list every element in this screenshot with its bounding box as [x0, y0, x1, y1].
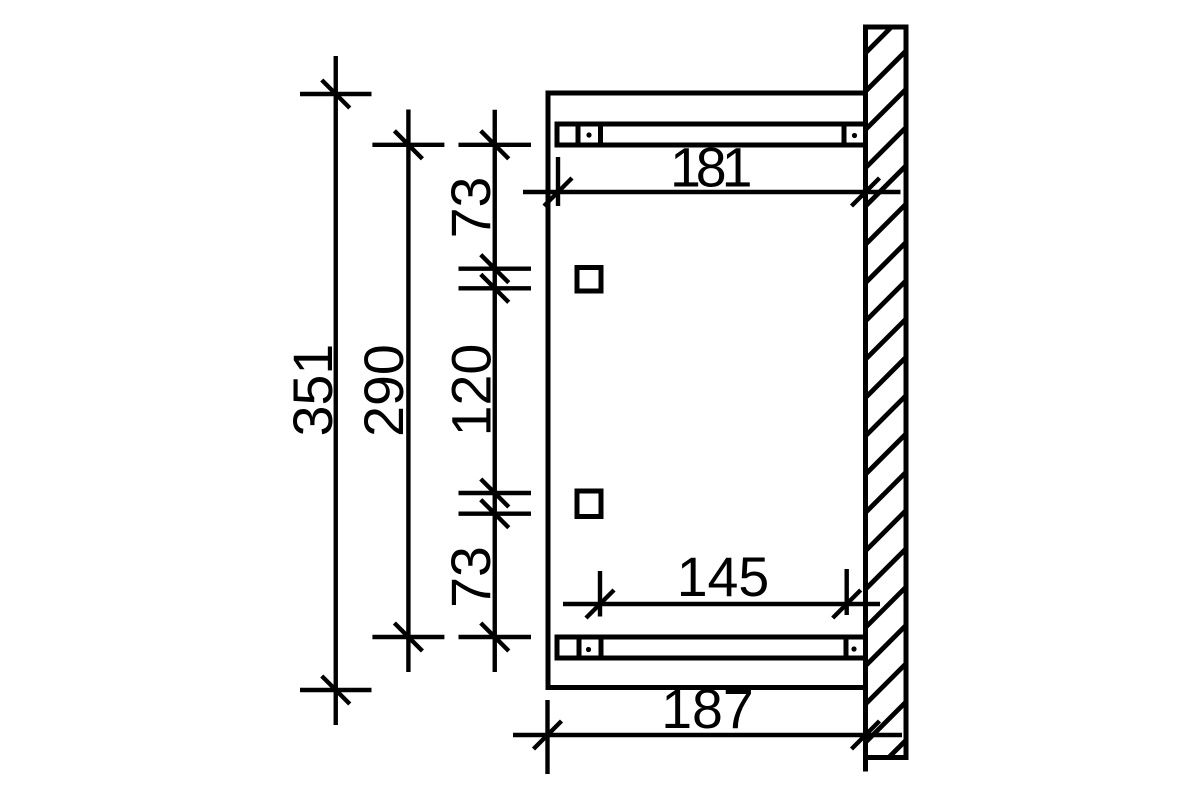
svg-text:181: 181	[670, 137, 751, 199]
svg-text:187: 187	[661, 678, 754, 740]
svg-text:73: 73	[440, 546, 502, 608]
svg-text:120: 120	[441, 344, 503, 437]
svg-text:351: 351	[282, 344, 344, 437]
svg-text:145: 145	[677, 546, 770, 608]
svg-text:73: 73	[440, 177, 502, 239]
svg-text:290: 290	[353, 344, 415, 437]
